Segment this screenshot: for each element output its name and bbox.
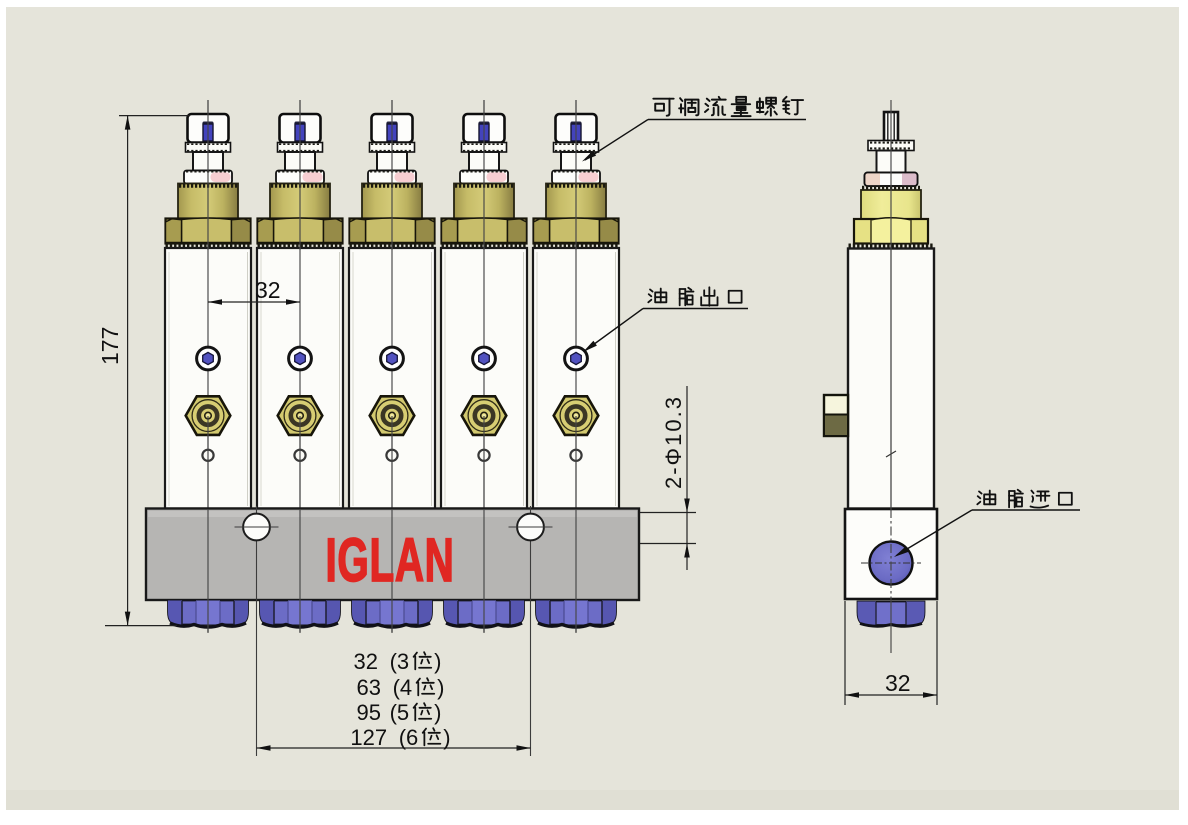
svg-text:2-Φ10.3: 2-Φ10.3 (661, 395, 686, 489)
svg-text:32: 32 (354, 649, 378, 674)
svg-text:(3: (3 (390, 649, 410, 674)
svg-text:127: 127 (350, 725, 387, 750)
svg-text:): ) (437, 675, 444, 700)
svg-text:32: 32 (885, 670, 911, 696)
svg-text:(6: (6 (399, 725, 419, 750)
svg-text:): ) (443, 725, 450, 750)
svg-text:): ) (434, 649, 441, 674)
svg-text:): ) (434, 700, 441, 725)
svg-text:63: 63 (357, 675, 381, 700)
svg-text:(5: (5 (390, 700, 410, 725)
svg-text:95: 95 (357, 700, 381, 725)
svg-text:(4: (4 (393, 675, 413, 700)
svg-text:32: 32 (255, 277, 281, 303)
svg-text:IGLAN: IGLAN (326, 526, 455, 594)
svg-text:177: 177 (97, 327, 123, 365)
